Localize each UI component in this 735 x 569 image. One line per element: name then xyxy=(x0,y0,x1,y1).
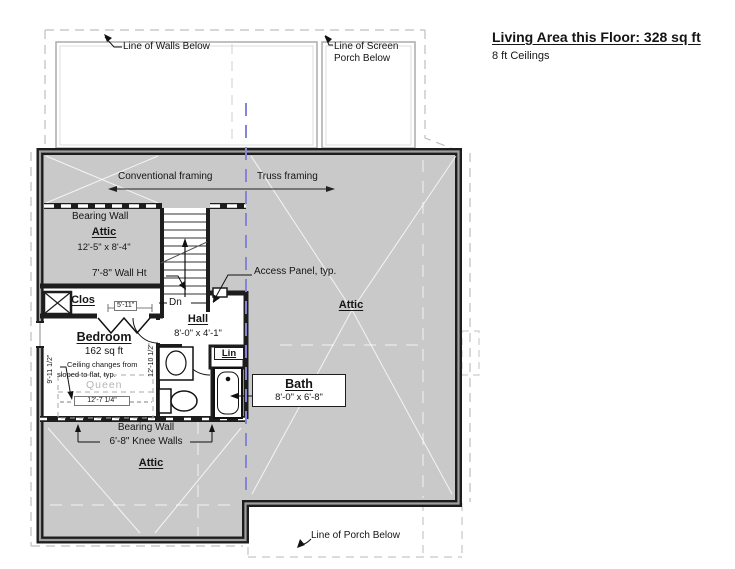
room-attic-south: Attic xyxy=(130,457,172,470)
sink-fixture xyxy=(159,347,193,380)
room-bedroom: Bedroom xyxy=(68,330,140,345)
label-bearing-wall-upper: Bearing Wall xyxy=(72,211,128,223)
room-hall-dims: 8'-0" x 4'-1" xyxy=(162,328,234,339)
dim-bedroom-depth: 9'-11 1/2" xyxy=(47,339,55,399)
label-conventional-framing: Conventional framing xyxy=(118,171,213,183)
room-closet: Clos xyxy=(60,294,106,307)
walls-below-outline xyxy=(56,42,317,148)
room-attic-nw: Attic xyxy=(75,226,133,239)
callout-porch-below: Line of Porch Below xyxy=(311,530,400,542)
room-bath: Bath xyxy=(253,377,345,392)
ceiling-height-note: 8 ft Ceilings xyxy=(492,50,549,63)
callout-screen-porch: Line of Screen Porch Below xyxy=(334,41,414,65)
room-bath-dims: 8'-0" x 6'-8" xyxy=(253,392,345,403)
room-bedroom-area: 162 sq ft xyxy=(68,346,140,358)
label-bearing-wall-lower: Bearing Wall xyxy=(110,422,182,434)
toilet-fixture xyxy=(159,389,197,413)
room-hall: Hall xyxy=(178,313,218,326)
label-wall-height: 7'-8" Wall Ht xyxy=(92,268,147,280)
living-area-heading: Living Area this Floor: 328 sq ft xyxy=(492,29,701,46)
dim-bedroom-width: 12'-7 1/4" xyxy=(74,396,130,406)
floor-plan-drawing xyxy=(0,0,735,569)
label-knee-walls: 6'-8" Knee Walls xyxy=(100,436,192,448)
note-ceiling-line1: Ceiling changes from xyxy=(67,361,137,370)
room-linen: Lin xyxy=(214,347,244,360)
label-bed-queen: Queen xyxy=(86,379,123,391)
room-attic-east: Attic xyxy=(330,299,372,312)
callout-access-panel: Access Panel, typ. xyxy=(254,266,336,278)
dim-hall-depth: 12'-10 1/2" xyxy=(148,330,156,390)
dim-closet-width: 5'-11" xyxy=(114,301,137,311)
bath-label-box: Bath 8'-0" x 6'-8" xyxy=(252,374,346,407)
label-truss-framing: Truss framing xyxy=(257,171,318,183)
label-stairs-down: Dn xyxy=(167,297,184,309)
room-attic-nw-dims: 12'-5" x 8'-4" xyxy=(68,242,140,253)
callout-walls-below: Line of Walls Below xyxy=(123,41,210,53)
floor-plan-sheet: Living Area this Floor: 328 sq ft 8 ft C… xyxy=(0,0,735,569)
bedroom-window xyxy=(36,322,44,347)
bathtub-fixture xyxy=(214,368,242,418)
